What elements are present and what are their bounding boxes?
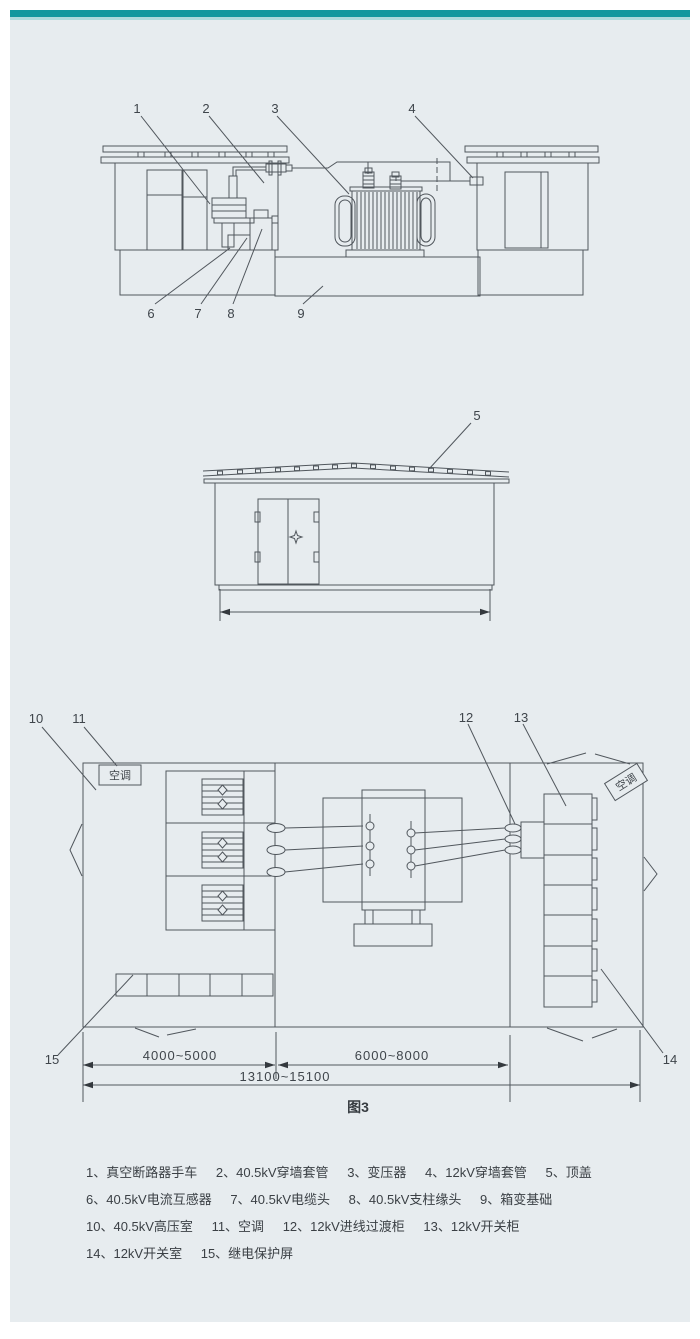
callout-5-leader bbox=[429, 423, 471, 469]
double-door bbox=[255, 499, 319, 584]
callout-6: 6 bbox=[147, 306, 154, 321]
legend: 1、真空断路器手车 2、40.5kV穿墙套管 3、变压器 4、12kV穿墙套管 … bbox=[86, 1159, 686, 1267]
legend-item: 4、12kV穿墙套管 bbox=[425, 1165, 527, 1180]
callout-11: 11 bbox=[72, 711, 86, 726]
side-elevation-view: 1 2 3 4 6 7 8 9 bbox=[101, 101, 599, 321]
legend-item: 12、12kV进线过渡柜 bbox=[283, 1219, 405, 1234]
substation-foundation bbox=[120, 250, 583, 296]
callout-15: 15 bbox=[45, 1052, 59, 1067]
enclosure-body bbox=[215, 483, 494, 590]
legend-item: 14、12kV开关室 bbox=[86, 1246, 182, 1261]
legend-item: 9、箱变基础 bbox=[480, 1192, 552, 1207]
end-elevation-view: 5 bbox=[203, 408, 509, 621]
hv-bushings-plan bbox=[267, 824, 363, 877]
legend-line-4: 14、12kV开关室 15、继电保护屏 bbox=[86, 1240, 686, 1267]
callout-1: 1 bbox=[133, 101, 140, 116]
dim-overall: 13100~15100 bbox=[240, 1069, 331, 1084]
top-cover-roof bbox=[203, 463, 509, 483]
transformer-plan bbox=[323, 790, 462, 946]
legend-item: 8、40.5kV支柱缘头 bbox=[349, 1192, 462, 1207]
callout-7: 7 bbox=[194, 306, 201, 321]
ct-cablehead-insulator bbox=[228, 210, 278, 250]
legend-item: 2、40.5kV穿墙套管 bbox=[216, 1165, 329, 1180]
air-conditioner-left-label: 空调 bbox=[109, 768, 131, 782]
switch-room-roof-vents bbox=[497, 152, 575, 157]
callout-13: 13 bbox=[514, 710, 528, 725]
wall-break-marks bbox=[70, 753, 657, 1041]
figure3-drawing: 1 2 3 4 6 7 8 9 bbox=[0, 0, 700, 1339]
callout-4: 4 bbox=[408, 101, 415, 116]
hv-room-building bbox=[101, 146, 289, 250]
plan-outer-wall bbox=[83, 763, 643, 1027]
legend-item: 5、顶盖 bbox=[546, 1165, 592, 1180]
end-view-dimension bbox=[220, 589, 490, 621]
legend-line-2: 6、40.5kV电流互感器 7、40.5kV电缆头 8、40.5kV支柱缘头 9… bbox=[86, 1186, 686, 1213]
callout-5: 5 bbox=[473, 408, 480, 423]
air-conditioner-right: 空调 bbox=[605, 763, 648, 800]
legend-item: 13、12kV开关柜 bbox=[423, 1219, 519, 1234]
transformer-fins bbox=[357, 192, 417, 249]
callout-12: 12 bbox=[459, 710, 473, 725]
legend-item: 11、空调 bbox=[212, 1219, 265, 1234]
legend-item: 1、真空断路器手车 bbox=[86, 1165, 197, 1180]
callout-14: 14 bbox=[663, 1052, 677, 1067]
lv-switchgear-column bbox=[544, 794, 597, 1007]
callout-8: 8 bbox=[227, 306, 234, 321]
transformer-bushings bbox=[363, 168, 401, 189]
legend-item: 6、40.5kV电流互感器 bbox=[86, 1192, 212, 1207]
air-conditioner-left: 空调 bbox=[99, 765, 141, 785]
side-view-leaders bbox=[141, 116, 473, 304]
dim-left-room: 4000~5000 bbox=[143, 1048, 217, 1063]
hv-panel-block bbox=[166, 771, 275, 930]
hv-room-roof-vents bbox=[138, 152, 274, 157]
switch-room-building bbox=[465, 146, 599, 250]
callout-2: 2 bbox=[202, 101, 209, 116]
legend-item: 7、40.5kV电缆头 bbox=[230, 1192, 330, 1207]
callout-10: 10 bbox=[29, 711, 43, 726]
door-handle bbox=[290, 531, 302, 543]
dim-transformer-room: 6000~8000 bbox=[355, 1048, 429, 1063]
legend-line-3: 10、40.5kV高压室 11、空调 12、12kV进线过渡柜 13、12kV开… bbox=[86, 1213, 686, 1240]
legend-line-1: 1、真空断路器手车 2、40.5kV穿墙套管 3、变压器 4、12kV穿墙套管 … bbox=[86, 1159, 686, 1186]
figure-caption: 图3 bbox=[347, 1099, 369, 1115]
vacuum-breaker-truck bbox=[212, 176, 254, 247]
callout-9: 9 bbox=[297, 306, 304, 321]
legend-item: 10、40.5kV高压室 bbox=[86, 1219, 193, 1234]
catalog-page: 1 2 3 4 6 7 8 9 bbox=[0, 0, 700, 1339]
lv-transition-cabinet bbox=[415, 822, 544, 866]
relay-protection-screens bbox=[116, 974, 273, 996]
legend-item: 15、继电保护屏 bbox=[201, 1246, 293, 1261]
callout-3: 3 bbox=[271, 101, 278, 116]
legend-item: 3、变压器 bbox=[347, 1165, 406, 1180]
plan-dimensions: 4000~5000 6000~8000 13100~15100 bbox=[83, 1030, 640, 1102]
plan-view: 空调 bbox=[29, 710, 677, 1115]
